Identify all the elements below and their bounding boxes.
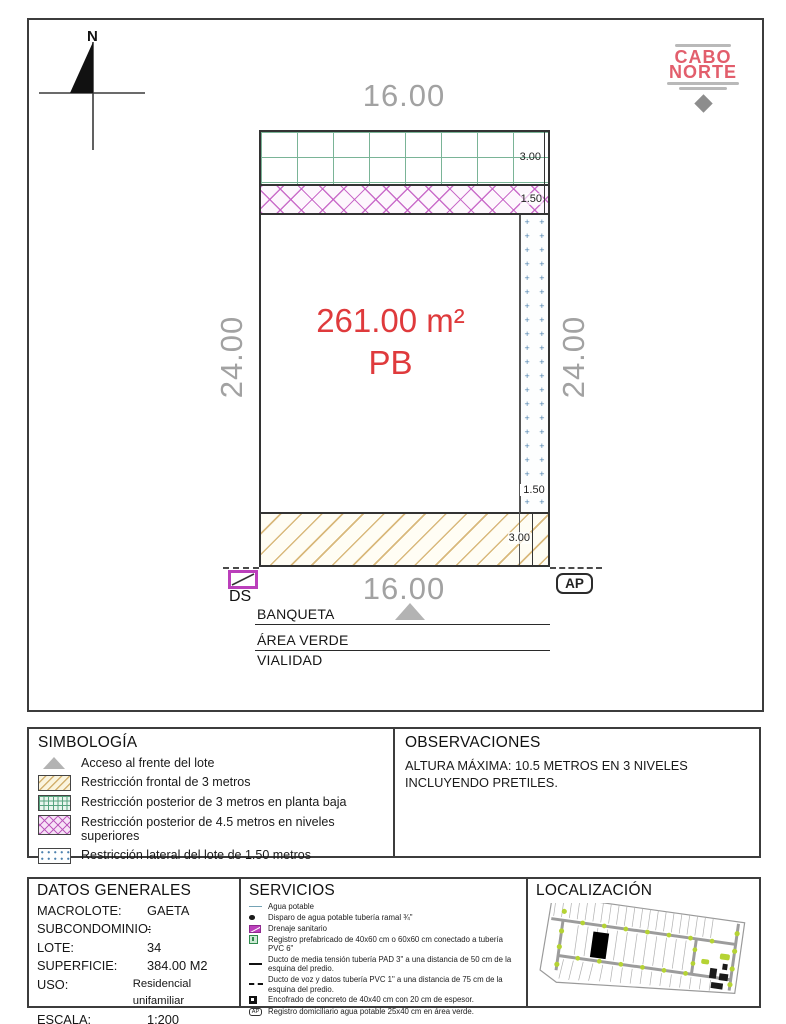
- banqueta-label: BANQUETA: [257, 606, 335, 622]
- logo-word-norte: NORTE: [649, 65, 757, 80]
- datos-row: ESCALA: 1:200: [37, 1011, 231, 1024]
- lateral-restriction-strip: + + + + + + + + + + + + + + + + + + + + …: [520, 215, 548, 512]
- ap-register-marker: AP: [556, 573, 593, 594]
- observaciones-line: ALTURA MÁXIMA: 10.5 METROS EN 3 NIVELES: [405, 757, 749, 774]
- area-verde-line: [255, 650, 550, 651]
- property-line-dash-right: [550, 567, 602, 569]
- datos-value: 384.00 M2: [147, 957, 207, 974]
- upper-rear-restriction-strip: [261, 186, 548, 215]
- datos-row: SUPERFICIE: 384.00 M2: [37, 957, 231, 974]
- dashed-duct-line-icon: [249, 983, 263, 985]
- sewer-connection-icon: [228, 570, 258, 589]
- cabo-norte-logo: CABO NORTE: [649, 44, 757, 110]
- dimension-right: 24.00: [556, 282, 596, 432]
- front-dimension-line: [532, 512, 533, 565]
- sewer-box-icon: [249, 925, 261, 933]
- lateral-dots-swatch-icon: [38, 848, 71, 864]
- servicio-item: Registro prefabricado de 40x60 cm o 60x6…: [249, 935, 518, 954]
- tap-dot-icon: [249, 915, 255, 920]
- legend-item-rear-restriction: Restricción posterior de 3 metros en pla…: [38, 795, 384, 811]
- simbologia-title: SIMBOLOGÍA: [38, 734, 384, 752]
- datos-value: -: [147, 920, 151, 937]
- logo-microtext-bar: [679, 87, 727, 90]
- observaciones-section: OBSERVACIONES ALTURA MÁXIMA: 10.5 METROS…: [395, 729, 759, 856]
- legend-item-upper-restriction: Restricción posterior de 4.5 metros en n…: [38, 815, 384, 844]
- north-arrow-icon: [37, 30, 152, 155]
- legend-label: Acceso al frente del lote: [81, 756, 214, 771]
- servicio-label: Registro domiciliario agua potable 25x40…: [268, 1007, 474, 1016]
- dimension-front-strip: 3.00: [508, 532, 531, 544]
- location-map: [534, 903, 753, 1002]
- dimension-top: 16.00: [329, 78, 479, 114]
- servicio-item: Encofrado de concreto de 40x40 cm con 20…: [249, 995, 518, 1005]
- lot-area-label: 261.00 m² PB: [261, 300, 520, 384]
- legend-label: Restricción lateral del lote de 1.50 met…: [81, 848, 311, 863]
- servicios-section: SERVICIOS Agua potable Disparo de agua p…: [241, 879, 528, 1006]
- register-box-icon: [249, 935, 258, 944]
- localizacion-title: LOCALIZACIÓN: [536, 882, 751, 900]
- servicio-label: Registro prefabricado de 40x60 cm o 60x6…: [268, 935, 518, 954]
- dimension-bottom: 16.00: [329, 571, 479, 607]
- vialidad-label: VIALIDAD: [257, 652, 322, 668]
- servicio-label: Disparo de agua potable tubería ramal ¾": [268, 913, 413, 922]
- servicio-item: Agua potable: [249, 902, 518, 912]
- servicios-title: SERVICIOS: [249, 882, 518, 900]
- legend-item-access: Acceso al frente del lote: [38, 756, 384, 771]
- legend-band: SIMBOLOGÍA Acceso al frente del lote Res…: [27, 727, 761, 858]
- area-verde-label: ÁREA VERDE: [257, 632, 348, 648]
- water-line-icon: [249, 906, 262, 907]
- logo-microtext-bar: [667, 82, 739, 85]
- dimension-rear-strip: 3.00: [520, 151, 541, 163]
- servicio-label: Encofrado de concreto de 40x40 cm con 20…: [268, 995, 474, 1004]
- logo-diamond-icon: [694, 94, 712, 112]
- level-value: PB: [261, 342, 520, 384]
- servicio-item: Disparo de agua potable tubería ramal ¾": [249, 913, 518, 923]
- concrete-square-icon: [249, 996, 257, 1004]
- datos-label: ESCALA:: [37, 1011, 147, 1024]
- rear-dimension-line: [544, 132, 545, 215]
- datos-value: Residencial unifamiliar: [133, 976, 231, 1010]
- servicio-item: Ducto de voz y datos tubería PVC 1" a un…: [249, 975, 518, 994]
- lot-plan-sheet: N CABO NORTE 16.00 + + + + + + + + + + +…: [0, 0, 786, 1024]
- datos-value: GAETA: [147, 902, 189, 919]
- info-band: DATOS GENERALES MACROLOTE: GAETA SUBCOND…: [27, 877, 761, 1008]
- access-arrow-icon: [395, 603, 425, 620]
- servicio-label: Ducto de media tensión tubería PAD 3" a …: [268, 955, 518, 974]
- rear-grid-swatch-icon: [38, 795, 71, 811]
- legend-item-front-restriction: Restricción frontal de 3 metros: [38, 775, 384, 791]
- datos-label: LOTE:: [37, 939, 147, 956]
- datos-value: 34: [147, 939, 161, 956]
- datos-value: 1:200: [147, 1011, 179, 1024]
- observaciones-line: INCLUYENDO PRETILES.: [405, 774, 749, 791]
- servicio-label: Drenaje sanitario: [268, 924, 327, 933]
- datos-row: LOTE: 34: [37, 939, 231, 956]
- dimension-upper-strip: 1.50: [520, 193, 543, 205]
- servicio-label: Ducto de voz y datos tubería PVC 1" a un…: [268, 975, 518, 994]
- datos-label: MACROLOTE:: [37, 902, 147, 919]
- upper-cross-swatch-icon: [38, 815, 71, 835]
- datos-generales-title: DATOS GENERALES: [37, 882, 231, 900]
- servicio-label: Agua potable: [268, 902, 314, 911]
- datos-row: MACROLOTE: GAETA: [37, 902, 231, 919]
- front-hatch-swatch-icon: [38, 775, 71, 791]
- datos-label: SUPERFICIE:: [37, 957, 147, 974]
- lot-outline: + + + + + + + + + + + + + + + + + + + + …: [259, 130, 550, 567]
- datos-label: USO:: [37, 976, 133, 1010]
- servicio-item: AP Registro domiciliario agua potable 25…: [249, 1007, 518, 1017]
- access-triangle-icon: [43, 757, 65, 769]
- plan-drawing-box: N CABO NORTE 16.00 + + + + + + + + + + +…: [27, 18, 764, 712]
- datos-row: SUBCONDOMINIO: -: [37, 920, 231, 937]
- banqueta-line: [255, 624, 550, 625]
- observaciones-title: OBSERVACIONES: [405, 734, 749, 752]
- dimension-lateral-strip: 1.50: [520, 484, 548, 496]
- simbologia-section: SIMBOLOGÍA Acceso al frente del lote Res…: [29, 729, 395, 856]
- localizacion-section: LOCALIZACIÓN: [528, 879, 759, 1006]
- servicio-item: Drenaje sanitario: [249, 924, 518, 934]
- legend-label: Restricción posterior de 4.5 metros en n…: [81, 815, 361, 844]
- dimension-left: 24.00: [214, 282, 254, 432]
- datos-generales-section: DATOS GENERALES MACROLOTE: GAETA SUBCOND…: [29, 879, 241, 1006]
- datos-row: USO: Residencial unifamiliar: [37, 976, 231, 1010]
- legend-label: Restricción posterior de 3 metros en pla…: [81, 795, 346, 810]
- datos-label: SUBCONDOMINIO:: [37, 920, 147, 937]
- property-line-dash-left: [223, 567, 259, 569]
- ds-label: DS: [229, 588, 251, 606]
- front-restriction-strip: [261, 512, 548, 565]
- servicio-item: Ducto de media tensión tubería PAD 3" a …: [249, 955, 518, 974]
- legend-item-lateral-restriction: Restricción lateral del lote de 1.50 met…: [38, 848, 384, 864]
- ap-register-icon: AP: [249, 1008, 262, 1016]
- rear-restriction-strip: [261, 132, 548, 186]
- legend-label: Restricción frontal de 3 metros: [81, 775, 251, 790]
- solid-duct-line-icon: [249, 963, 262, 965]
- area-value: 261.00 m²: [261, 300, 520, 342]
